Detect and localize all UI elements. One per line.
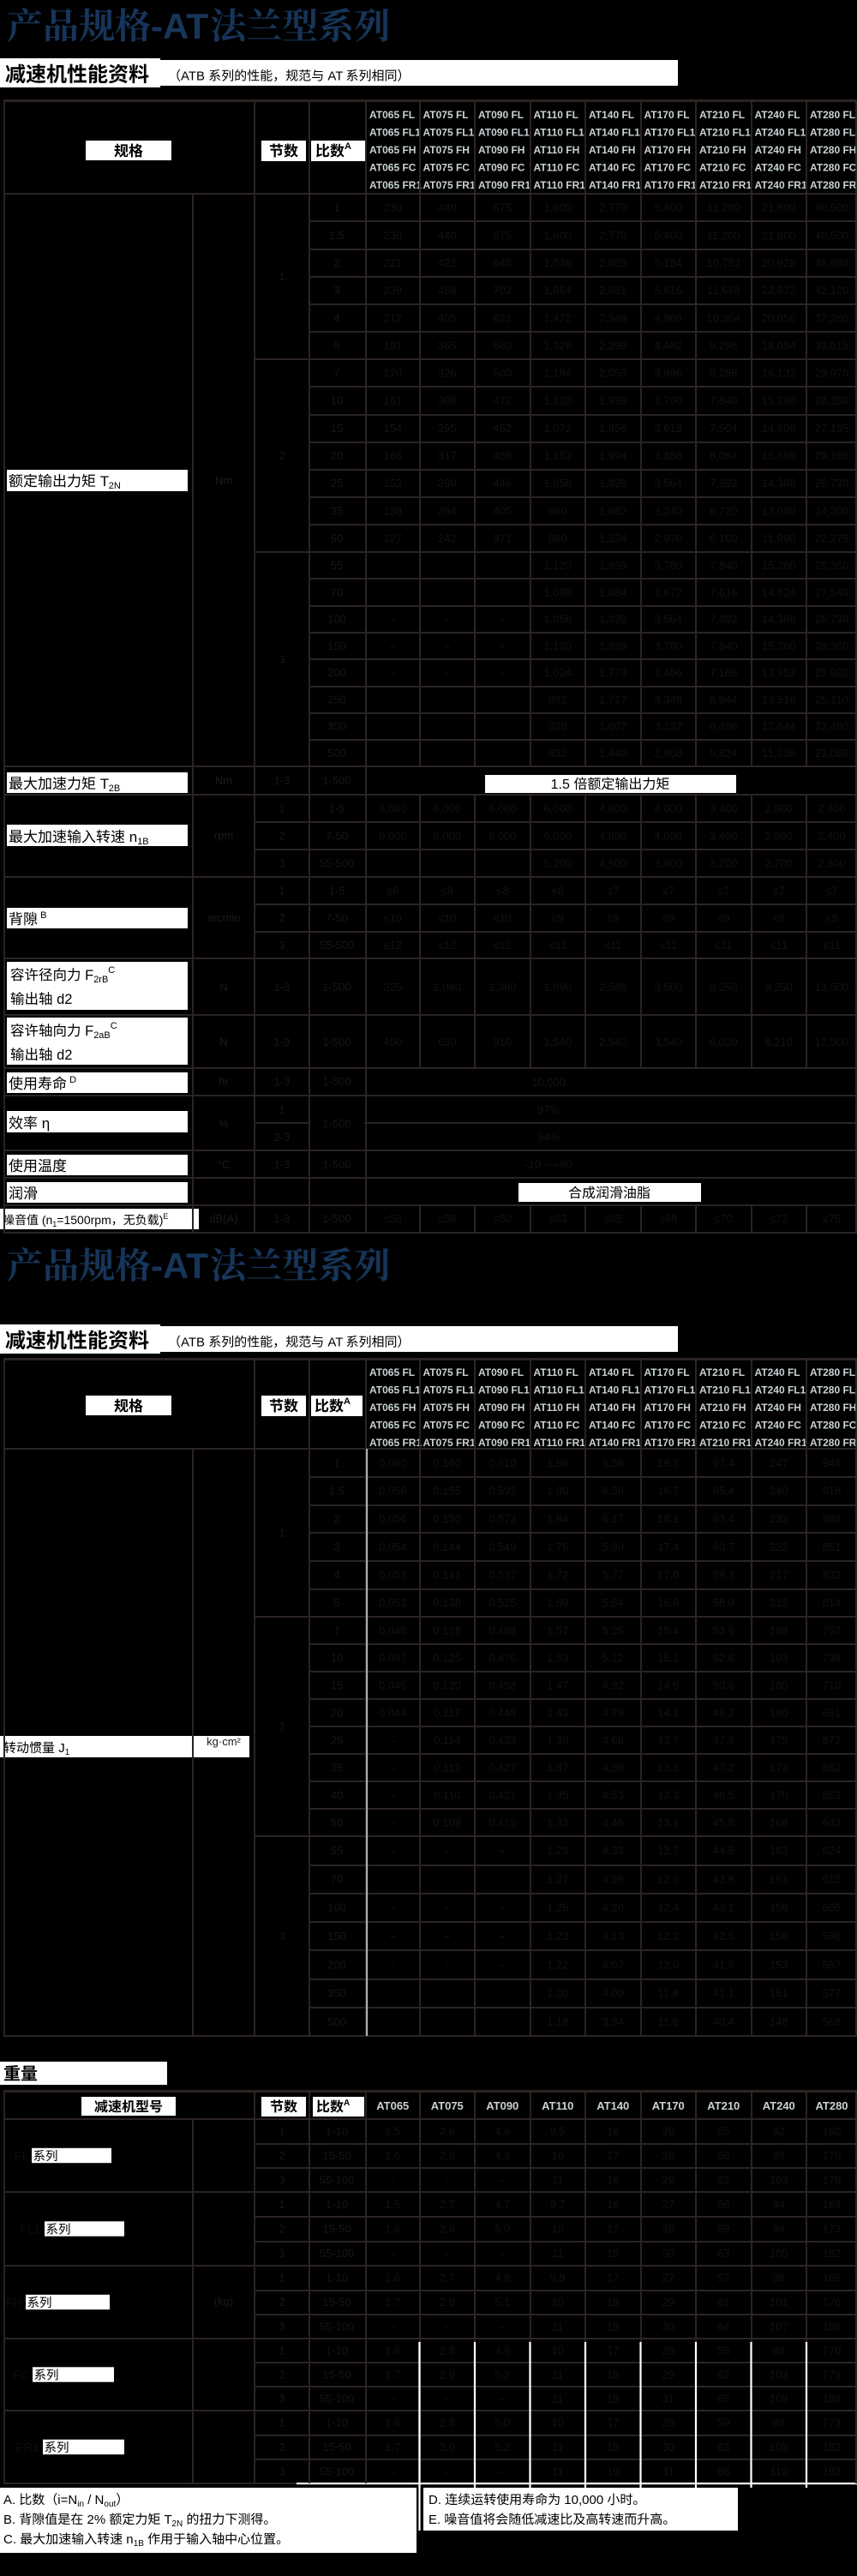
svg-text:1.6: 1.6 bbox=[385, 2272, 400, 2285]
svg-text:1,884: 1,884 bbox=[599, 585, 627, 598]
svg-text:109: 109 bbox=[770, 2393, 788, 2405]
svg-text:19: 19 bbox=[607, 2393, 619, 2405]
svg-text:FH: FH bbox=[6, 2297, 22, 2310]
svg-text:10: 10 bbox=[552, 2149, 564, 2162]
svg-text:29: 29 bbox=[662, 2369, 674, 2381]
svg-text:14,388: 14,388 bbox=[762, 477, 796, 489]
svg-text:–: – bbox=[390, 2465, 397, 2477]
svg-text:2,800: 2,800 bbox=[764, 802, 793, 815]
svg-text:8,210: 8,210 bbox=[764, 1036, 793, 1048]
svg-text:AT140 FH: AT140 FH bbox=[589, 144, 635, 156]
svg-text:62: 62 bbox=[717, 2369, 729, 2381]
svg-text:(kg): (kg) bbox=[214, 2295, 233, 2308]
svg-text:2: 2 bbox=[279, 830, 285, 843]
svg-text:2,881: 2,881 bbox=[599, 284, 627, 297]
svg-text:240: 240 bbox=[770, 1485, 788, 1498]
svg-text:621: 621 bbox=[493, 311, 512, 324]
svg-text:AT240 FL: AT240 FL bbox=[755, 1366, 800, 1378]
svg-text:35: 35 bbox=[331, 1762, 343, 1774]
svg-text:1: 1 bbox=[279, 2198, 285, 2211]
svg-text:3,564: 3,564 bbox=[654, 613, 682, 626]
svg-text:rpm: rpm bbox=[214, 829, 233, 842]
svg-text:2: 2 bbox=[279, 912, 285, 925]
svg-text:11: 11 bbox=[552, 2441, 564, 2453]
svg-text:E.: E. bbox=[428, 2513, 440, 2527]
svg-text:3: 3 bbox=[279, 2173, 285, 2186]
svg-text:105: 105 bbox=[770, 2247, 788, 2260]
svg-text:0.044: 0.044 bbox=[379, 1707, 407, 1720]
svg-text:0.592: 0.592 bbox=[488, 1485, 517, 1498]
svg-text:189: 189 bbox=[823, 2393, 842, 2405]
svg-text:58.0: 58.0 bbox=[713, 1596, 734, 1609]
svg-text:1B: 1B bbox=[137, 837, 148, 847]
svg-text:17: 17 bbox=[607, 2417, 619, 2429]
svg-text:J: J bbox=[58, 1741, 65, 1756]
svg-text:0.144: 0.144 bbox=[433, 1540, 461, 1553]
svg-text:59.3: 59.3 bbox=[713, 1569, 734, 1582]
svg-text:N: N bbox=[219, 981, 227, 994]
svg-text:≤8: ≤8 bbox=[496, 885, 508, 898]
svg-text:AT240 FL: AT240 FL bbox=[755, 109, 800, 121]
svg-text:18: 18 bbox=[607, 2173, 619, 2186]
svg-text:25,920: 25,920 bbox=[815, 666, 849, 679]
svg-text:15,696: 15,696 bbox=[762, 449, 796, 462]
svg-text:1.53: 1.53 bbox=[547, 1652, 568, 1665]
svg-text:kg·cm²: kg·cm² bbox=[207, 1735, 241, 1748]
svg-text:2,800: 2,800 bbox=[764, 830, 793, 843]
svg-text:10,000: 10,000 bbox=[564, 2493, 603, 2507]
svg-text:T: T bbox=[100, 473, 109, 489]
svg-text:179: 179 bbox=[823, 2369, 842, 2381]
svg-text:46.5: 46.5 bbox=[713, 1789, 734, 1802]
svg-text:1: 1 bbox=[279, 2125, 285, 2138]
svg-text:6,000: 6,000 bbox=[433, 802, 461, 815]
svg-text:1,536: 1,536 bbox=[543, 256, 572, 269]
svg-text:1-3: 1-3 bbox=[274, 1212, 291, 1225]
svg-text:150: 150 bbox=[327, 1930, 346, 1943]
svg-text:198: 198 bbox=[770, 1624, 788, 1637]
svg-text:0.525: 0.525 bbox=[488, 1596, 517, 1609]
svg-text:AT090 FL1: AT090 FL1 bbox=[478, 1384, 530, 1396]
svg-text:14.1: 14.1 bbox=[657, 1707, 679, 1720]
svg-text:691: 691 bbox=[823, 1707, 842, 1720]
svg-text:0.048: 0.048 bbox=[379, 1624, 407, 1637]
svg-text:–: – bbox=[500, 1958, 506, 1971]
svg-text:440: 440 bbox=[438, 229, 457, 242]
svg-text:4.6: 4.6 bbox=[494, 2125, 510, 2138]
svg-text:9.5: 9.5 bbox=[550, 2125, 566, 2138]
svg-text:28: 28 bbox=[662, 2345, 674, 2357]
svg-text:1,328: 1,328 bbox=[543, 339, 572, 351]
svg-text:1,890: 1,890 bbox=[543, 981, 572, 994]
svg-text:AT280 FC: AT280 FC bbox=[810, 161, 857, 173]
svg-text:1,856: 1,856 bbox=[599, 422, 627, 435]
svg-text:98: 98 bbox=[773, 2345, 785, 2357]
svg-text:0.052: 0.052 bbox=[379, 1596, 407, 1609]
svg-text:587: 587 bbox=[823, 1958, 842, 1971]
svg-text:200: 200 bbox=[327, 666, 346, 679]
svg-text:5.1: 5.1 bbox=[494, 2296, 510, 2309]
svg-text:d2: d2 bbox=[57, 992, 72, 1007]
svg-text:13,500: 13,500 bbox=[815, 981, 849, 994]
svg-text:21,800: 21,800 bbox=[762, 201, 796, 214]
svg-text:AT240 FH: AT240 FH bbox=[755, 1402, 801, 1414]
svg-text:11.6: 11.6 bbox=[658, 2015, 679, 2028]
svg-text:3,800: 3,800 bbox=[654, 857, 682, 870]
svg-text:9.7: 9.7 bbox=[550, 2198, 566, 2211]
svg-text:17: 17 bbox=[607, 2149, 619, 2162]
svg-text:26,730: 26,730 bbox=[815, 477, 849, 489]
svg-text:AT210 FL: AT210 FL bbox=[699, 109, 745, 121]
svg-text:42.5: 42.5 bbox=[713, 1930, 734, 1943]
svg-text:≤58: ≤58 bbox=[383, 1212, 402, 1225]
svg-text:30: 30 bbox=[662, 2441, 674, 2453]
svg-text:0.045: 0.045 bbox=[379, 1679, 407, 1692]
svg-text:52.6: 52.6 bbox=[713, 1652, 734, 1665]
svg-text:3,996: 3,996 bbox=[654, 367, 682, 380]
svg-text:290: 290 bbox=[438, 477, 457, 489]
svg-text:4,482: 4,482 bbox=[654, 339, 682, 351]
svg-text:1-500: 1-500 bbox=[322, 1212, 351, 1225]
svg-text:173: 173 bbox=[770, 1762, 788, 1774]
svg-text:851: 851 bbox=[823, 1540, 842, 1553]
svg-text:371: 371 bbox=[493, 531, 512, 544]
svg-text:0.141: 0.141 bbox=[433, 1569, 461, 1582]
svg-text:12,644: 12,644 bbox=[762, 720, 796, 733]
svg-text:757: 757 bbox=[823, 1624, 842, 1637]
svg-text:FL1: FL1 bbox=[20, 2224, 41, 2237]
svg-text:221: 221 bbox=[383, 256, 402, 269]
svg-text:AT065 FR1: AT065 FR1 bbox=[369, 1437, 422, 1449]
svg-text:163: 163 bbox=[770, 1844, 788, 1857]
svg-text:0.573: 0.573 bbox=[488, 1512, 517, 1525]
svg-text:0.150: 0.150 bbox=[433, 1512, 461, 1525]
svg-text:5,400: 5,400 bbox=[654, 201, 682, 214]
svg-text:AT140 FC: AT140 FC bbox=[589, 161, 636, 173]
svg-text:AT210 FH: AT210 FH bbox=[699, 144, 746, 156]
svg-text:4.46: 4.46 bbox=[602, 1816, 624, 1829]
svg-text:10,752: 10,752 bbox=[706, 256, 740, 269]
svg-text:212: 212 bbox=[383, 311, 402, 324]
svg-text:47.2: 47.2 bbox=[713, 1762, 734, 1774]
svg-text:3: 3 bbox=[333, 1540, 339, 1553]
svg-text:182: 182 bbox=[823, 2441, 842, 2453]
svg-text:12.0: 12.0 bbox=[657, 1958, 679, 1971]
svg-text:0.056: 0.056 bbox=[379, 1512, 407, 1525]
svg-text:7-50: 7-50 bbox=[326, 912, 348, 925]
svg-text:17: 17 bbox=[607, 2345, 619, 2357]
svg-text:AT090 FC: AT090 FC bbox=[478, 161, 525, 173]
svg-text:59: 59 bbox=[717, 2223, 729, 2236]
svg-text:AT075 FR1: AT075 FR1 bbox=[423, 179, 476, 191]
svg-text:12.5: 12.5 bbox=[657, 1872, 679, 1885]
svg-text:50: 50 bbox=[331, 531, 343, 544]
svg-text:605: 605 bbox=[823, 1901, 842, 1914]
svg-text:2rB: 2rB bbox=[93, 975, 108, 985]
svg-text:14.5: 14.5 bbox=[657, 1679, 679, 1692]
svg-text:–: – bbox=[390, 1901, 397, 1914]
svg-text:AT240 FR1: AT240 FR1 bbox=[755, 179, 807, 191]
svg-text:13,080: 13,080 bbox=[762, 504, 796, 517]
svg-text:≤12: ≤12 bbox=[438, 939, 457, 952]
svg-text:1-3: 1-3 bbox=[274, 1075, 291, 1088]
svg-text:180: 180 bbox=[770, 1707, 788, 1720]
svg-text:1,600: 1,600 bbox=[543, 229, 572, 242]
svg-text:20,928: 20,928 bbox=[762, 256, 796, 269]
svg-text:9.9: 9.9 bbox=[550, 2272, 566, 2285]
svg-text:AT280 FR1: AT280 FR1 bbox=[810, 1437, 857, 1449]
svg-text:AT170 FR1: AT170 FR1 bbox=[644, 1437, 697, 1449]
svg-text:1.5: 1.5 bbox=[329, 229, 345, 242]
svg-text:13,952: 13,952 bbox=[762, 666, 796, 679]
svg-text:1-500: 1-500 bbox=[322, 1036, 351, 1048]
svg-text:1.7: 1.7 bbox=[385, 2441, 400, 2453]
svg-text:1.96: 1.96 bbox=[547, 1456, 568, 1469]
svg-text:AT210 FC: AT210 FC bbox=[699, 1419, 746, 1431]
svg-text:1,380: 1,380 bbox=[488, 981, 517, 994]
svg-text:A.: A. bbox=[3, 2493, 15, 2507]
svg-text:9,250: 9,250 bbox=[764, 981, 793, 994]
svg-text:1,600: 1,600 bbox=[543, 201, 572, 214]
svg-text:≤7: ≤7 bbox=[773, 885, 785, 898]
svg-text:40: 40 bbox=[331, 1789, 343, 1802]
svg-text:4.13: 4.13 bbox=[602, 1930, 624, 1943]
svg-text:–: – bbox=[500, 639, 506, 652]
svg-text:16: 16 bbox=[607, 2198, 619, 2211]
svg-text:AT170 FL: AT170 FL bbox=[644, 1366, 690, 1378]
svg-text:8,064: 8,064 bbox=[710, 449, 738, 462]
svg-text:AT170 FL1: AT170 FL1 bbox=[644, 126, 696, 138]
svg-text:AT140 FL1: AT140 FL1 bbox=[589, 126, 640, 138]
svg-text:37,260: 37,260 bbox=[815, 311, 849, 324]
svg-text:–: – bbox=[500, 613, 506, 626]
svg-text:1.33: 1.33 bbox=[547, 1816, 568, 1829]
svg-text:11: 11 bbox=[552, 2393, 564, 2405]
svg-text:≤9: ≤9 bbox=[662, 912, 674, 925]
svg-text:AT140: AT140 bbox=[596, 2099, 629, 2112]
svg-text:10: 10 bbox=[331, 1652, 343, 1665]
svg-text:166: 166 bbox=[383, 449, 402, 462]
svg-text:18.1: 18.1 bbox=[657, 1512, 679, 1525]
svg-text:1.39: 1.39 bbox=[547, 1734, 568, 1747]
svg-text:1-10: 1-10 bbox=[326, 2125, 348, 2138]
svg-text:18: 18 bbox=[607, 2369, 619, 2381]
svg-text:4: 4 bbox=[333, 311, 339, 324]
svg-text:3,240: 3,240 bbox=[654, 504, 682, 517]
svg-text:T: T bbox=[100, 776, 109, 792]
svg-text:1-500: 1-500 bbox=[322, 1117, 351, 1130]
svg-text:3,400: 3,400 bbox=[710, 802, 738, 815]
svg-text:2,540: 2,540 bbox=[599, 1036, 627, 1048]
svg-text:5: 5 bbox=[333, 1596, 339, 1609]
svg-text:7: 7 bbox=[333, 1624, 339, 1637]
svg-text:452: 452 bbox=[493, 422, 512, 435]
svg-text:0.488: 0.488 bbox=[488, 1624, 517, 1637]
svg-text:0.054: 0.054 bbox=[379, 1540, 407, 1553]
svg-text:≤10: ≤10 bbox=[493, 912, 512, 925]
svg-text:–: – bbox=[500, 2393, 506, 2405]
svg-text:10: 10 bbox=[552, 2223, 564, 2236]
svg-text:AT280 FH: AT280 FH bbox=[810, 144, 856, 156]
svg-text:675: 675 bbox=[493, 201, 512, 214]
svg-text:C: C bbox=[108, 965, 115, 976]
svg-text:350: 350 bbox=[327, 1987, 346, 2000]
svg-text:65: 65 bbox=[717, 2393, 729, 2405]
svg-text:153: 153 bbox=[770, 1958, 788, 1971]
svg-text:≤9: ≤9 bbox=[717, 912, 729, 925]
svg-text:35: 35 bbox=[331, 504, 343, 517]
svg-text:170: 170 bbox=[823, 2149, 842, 2162]
svg-text:0.160: 0.160 bbox=[433, 1456, 461, 1469]
svg-text:1: 1 bbox=[279, 270, 285, 283]
svg-text:AT140 FL: AT140 FL bbox=[589, 109, 634, 121]
svg-text:–: – bbox=[444, 2393, 451, 2405]
svg-text:472: 472 bbox=[493, 394, 512, 407]
svg-text:28: 28 bbox=[662, 2223, 674, 2236]
svg-text:1-10: 1-10 bbox=[326, 2198, 348, 2211]
svg-text:107: 107 bbox=[770, 2320, 788, 2333]
svg-text:AT280 FL1: AT280 FL1 bbox=[810, 1384, 857, 1396]
svg-text:≤9: ≤9 bbox=[552, 912, 564, 925]
svg-text:440: 440 bbox=[438, 201, 457, 214]
svg-text:6,000: 6,000 bbox=[379, 802, 407, 815]
svg-text:232: 232 bbox=[770, 1512, 788, 1525]
svg-text:101: 101 bbox=[770, 2296, 788, 2309]
svg-text:D: D bbox=[69, 1075, 76, 1085]
svg-text:2: 2 bbox=[333, 1512, 339, 1525]
svg-text:30: 30 bbox=[662, 2320, 674, 2333]
svg-text:–: – bbox=[444, 2320, 451, 2333]
svg-text:910: 910 bbox=[493, 1036, 512, 1048]
svg-text:/ N: / N bbox=[87, 2493, 104, 2507]
svg-text:110: 110 bbox=[770, 2465, 788, 2477]
svg-text:AT075 FH: AT075 FH bbox=[423, 1402, 470, 1414]
svg-text:70: 70 bbox=[331, 1872, 343, 1885]
svg-text:103: 103 bbox=[770, 2369, 788, 2381]
svg-text:AT090 FC: AT090 FC bbox=[478, 1419, 525, 1431]
svg-text:103: 103 bbox=[770, 2173, 788, 2186]
svg-text:40.4: 40.4 bbox=[713, 2015, 734, 2028]
svg-text:AT210 FC: AT210 FC bbox=[699, 161, 746, 173]
svg-text:2.9: 2.9 bbox=[440, 2369, 455, 2381]
svg-text:AT170 FL: AT170 FL bbox=[644, 109, 690, 121]
svg-text:4.00: 4.00 bbox=[602, 1987, 624, 2000]
svg-text:AT075 FH: AT075 FH bbox=[423, 144, 470, 156]
svg-text:7: 7 bbox=[333, 367, 339, 380]
svg-text:1,056: 1,056 bbox=[543, 477, 572, 489]
svg-text:62: 62 bbox=[717, 2173, 729, 2186]
svg-text:5.2: 5.2 bbox=[494, 2369, 510, 2381]
svg-text:2.8: 2.8 bbox=[440, 2417, 455, 2429]
svg-text:–: – bbox=[390, 1762, 397, 1774]
svg-text:44.5: 44.5 bbox=[713, 1844, 734, 1857]
svg-text:27,135: 27,135 bbox=[815, 422, 849, 435]
svg-text:7,392: 7,392 bbox=[710, 477, 738, 489]
svg-text:3: 3 bbox=[279, 2247, 285, 2260]
svg-text:AT170 FH: AT170 FH bbox=[644, 1402, 691, 1414]
svg-text:308: 308 bbox=[438, 394, 457, 407]
svg-text:26,730: 26,730 bbox=[815, 613, 849, 626]
svg-text:31: 31 bbox=[662, 2393, 674, 2405]
svg-text:2%: 2% bbox=[87, 2513, 106, 2527]
svg-text:2: 2 bbox=[279, 2369, 285, 2381]
svg-text:326: 326 bbox=[438, 367, 457, 380]
svg-text:64: 64 bbox=[717, 2320, 729, 2333]
svg-text:94: 94 bbox=[773, 2198, 785, 2211]
svg-text:≤7: ≤7 bbox=[717, 885, 729, 898]
svg-text:AT: AT bbox=[327, 69, 343, 84]
svg-text:AT170 FR1: AT170 FR1 bbox=[644, 179, 697, 191]
svg-text:–: – bbox=[390, 1789, 397, 1802]
svg-text:2,400: 2,400 bbox=[818, 830, 846, 843]
svg-text:1: 1 bbox=[279, 885, 285, 898]
svg-text:7,840: 7,840 bbox=[710, 394, 738, 407]
svg-text:41.8: 41.8 bbox=[713, 1958, 734, 1971]
svg-text:0.549: 0.549 bbox=[488, 1540, 517, 1553]
svg-text:12.2: 12.2 bbox=[657, 1930, 679, 1943]
svg-text:18: 18 bbox=[607, 2296, 619, 2309]
svg-text:3: 3 bbox=[279, 2465, 285, 2477]
svg-text:29: 29 bbox=[662, 2296, 674, 2309]
svg-text:317: 317 bbox=[438, 449, 457, 462]
svg-text:17: 17 bbox=[607, 2272, 619, 2285]
svg-text:3: 3 bbox=[279, 2393, 285, 2405]
svg-text:3: 3 bbox=[279, 1930, 285, 1943]
svg-text:31: 31 bbox=[662, 2465, 674, 2477]
svg-text:55-100: 55-100 bbox=[320, 2393, 354, 2405]
svg-text:13.5: 13.5 bbox=[657, 1762, 679, 1774]
svg-text:B.: B. bbox=[3, 2513, 15, 2527]
svg-text:–: – bbox=[390, 1844, 397, 1857]
svg-text:156: 156 bbox=[770, 1930, 788, 1943]
svg-text:3,672: 3,672 bbox=[654, 585, 682, 598]
svg-text:3.94: 3.94 bbox=[602, 2015, 624, 2028]
svg-text:58: 58 bbox=[717, 2149, 729, 2162]
svg-text:450: 450 bbox=[383, 1036, 402, 1048]
svg-text:458: 458 bbox=[438, 284, 457, 297]
svg-text:176: 176 bbox=[823, 2296, 842, 2309]
svg-text:0.421: 0.421 bbox=[488, 1789, 517, 1802]
svg-text:14,606: 14,606 bbox=[762, 422, 796, 435]
svg-text:T: T bbox=[165, 2513, 172, 2527]
svg-text:AT140 FL: AT140 FL bbox=[589, 1366, 634, 1378]
svg-text:193: 193 bbox=[770, 1652, 788, 1665]
svg-text:1,939: 1,939 bbox=[599, 559, 627, 572]
svg-text:11,200: 11,200 bbox=[707, 229, 740, 242]
svg-text:1,060: 1,060 bbox=[433, 981, 461, 994]
svg-text:AT240 FR1: AT240 FR1 bbox=[755, 1437, 807, 1449]
svg-text:5,200: 5,200 bbox=[543, 857, 572, 870]
svg-text:-10 ~ +90: -10 ~ +90 bbox=[524, 1158, 572, 1171]
svg-text:–: – bbox=[390, 2247, 397, 2260]
svg-text:0.155: 0.155 bbox=[433, 1485, 461, 1498]
svg-text:3,456: 3,456 bbox=[654, 666, 682, 679]
svg-text:179: 179 bbox=[823, 2173, 842, 2186]
svg-text:≤9: ≤9 bbox=[825, 912, 837, 925]
svg-text:63: 63 bbox=[717, 2247, 729, 2260]
svg-text:AT075 FL: AT075 FL bbox=[423, 1366, 469, 1378]
svg-text:3,200: 3,200 bbox=[710, 857, 738, 870]
svg-text:1,939: 1,939 bbox=[599, 394, 627, 407]
svg-text:33,615: 33,615 bbox=[815, 339, 849, 351]
svg-text:1: 1 bbox=[279, 2417, 285, 2429]
svg-text:672: 672 bbox=[823, 1734, 842, 1747]
svg-text:1,773: 1,773 bbox=[599, 666, 627, 679]
svg-text:≤12: ≤12 bbox=[493, 939, 512, 952]
svg-text:1.7: 1.7 bbox=[385, 2296, 400, 2309]
svg-text:247: 247 bbox=[770, 1456, 788, 1469]
svg-text:163: 163 bbox=[823, 2198, 842, 2211]
